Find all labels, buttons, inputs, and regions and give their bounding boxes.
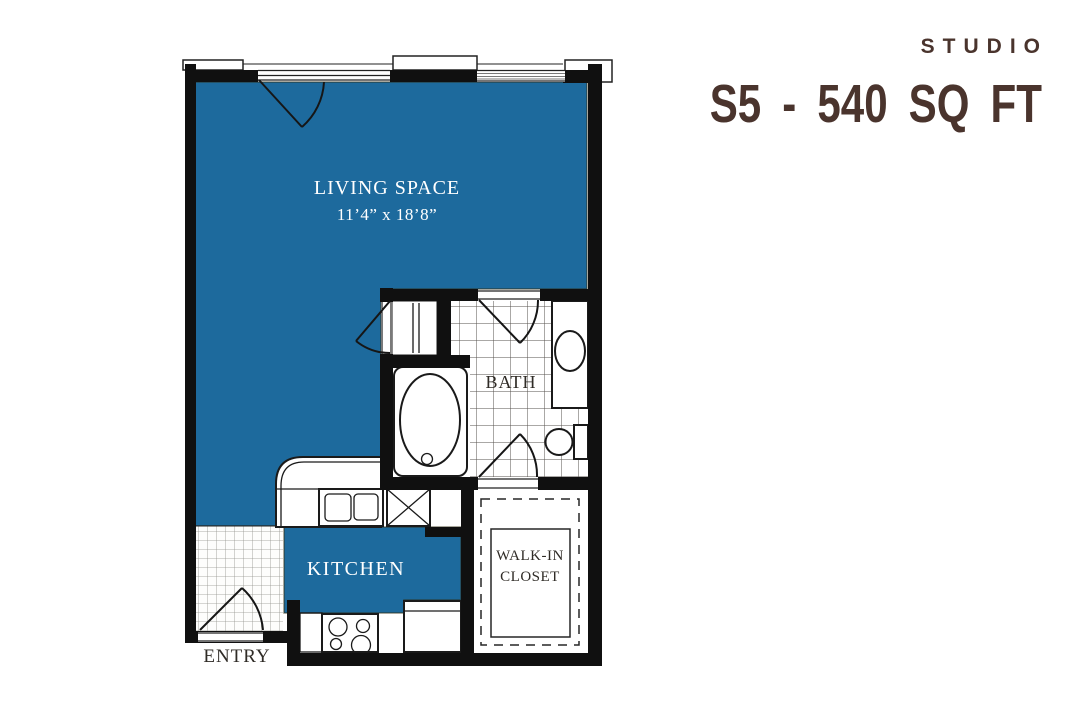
plan-name-heading: S5 - 540 SQ FT (710, 74, 1043, 134)
wall-bath-top-b (540, 289, 602, 301)
floor-plan-canvas: LIVING SPACE 11’4” x 18’8” BATH KITCHEN … (0, 0, 1080, 720)
floor-plan-page: LIVING SPACE 11’4” x 18’8” BATH KITCHEN … (0, 0, 1080, 720)
wall-right (588, 64, 602, 666)
living-space-dimensions: 11’4” x 18’8” (337, 205, 437, 224)
wall-left (185, 64, 196, 643)
kitchen-label: KITCHEN (307, 558, 405, 580)
linen-closet-niche (392, 301, 437, 355)
entry-label: ENTRY (203, 646, 270, 667)
vanity-sink (555, 331, 585, 371)
wall-bath-bottom-b (538, 477, 602, 490)
entry-tile-floor (192, 526, 283, 631)
toilet-tank (574, 425, 588, 459)
living-space-label: LIVING SPACE (314, 177, 460, 199)
wall-top-2 (390, 70, 477, 82)
window-sill-center (393, 56, 477, 70)
toilet-bowl (546, 429, 573, 455)
counter-left-section (300, 613, 322, 652)
closet-door-threshold (478, 478, 538, 489)
wall-kitchen-stub (425, 527, 474, 537)
bath-label: BATH (485, 372, 536, 392)
bathtub-basin (400, 374, 460, 466)
wall-niche-bottom (380, 355, 470, 368)
wall-closet-left (461, 477, 474, 655)
wall-bath-top-a (380, 289, 478, 301)
wall-living-bath (380, 354, 393, 490)
walkin-closet-label-line1: WALK-IN (496, 548, 564, 564)
walkin-closet-label-line2: CLOSET (500, 569, 560, 585)
plan-header: STUDIO S5 - 540 SQ FT (710, 35, 1048, 134)
wall-top-1 (191, 70, 258, 82)
plan-type-heading: STUDIO (921, 35, 1048, 58)
counter-right-section (404, 601, 461, 652)
wall-bottom-main (287, 653, 602, 666)
